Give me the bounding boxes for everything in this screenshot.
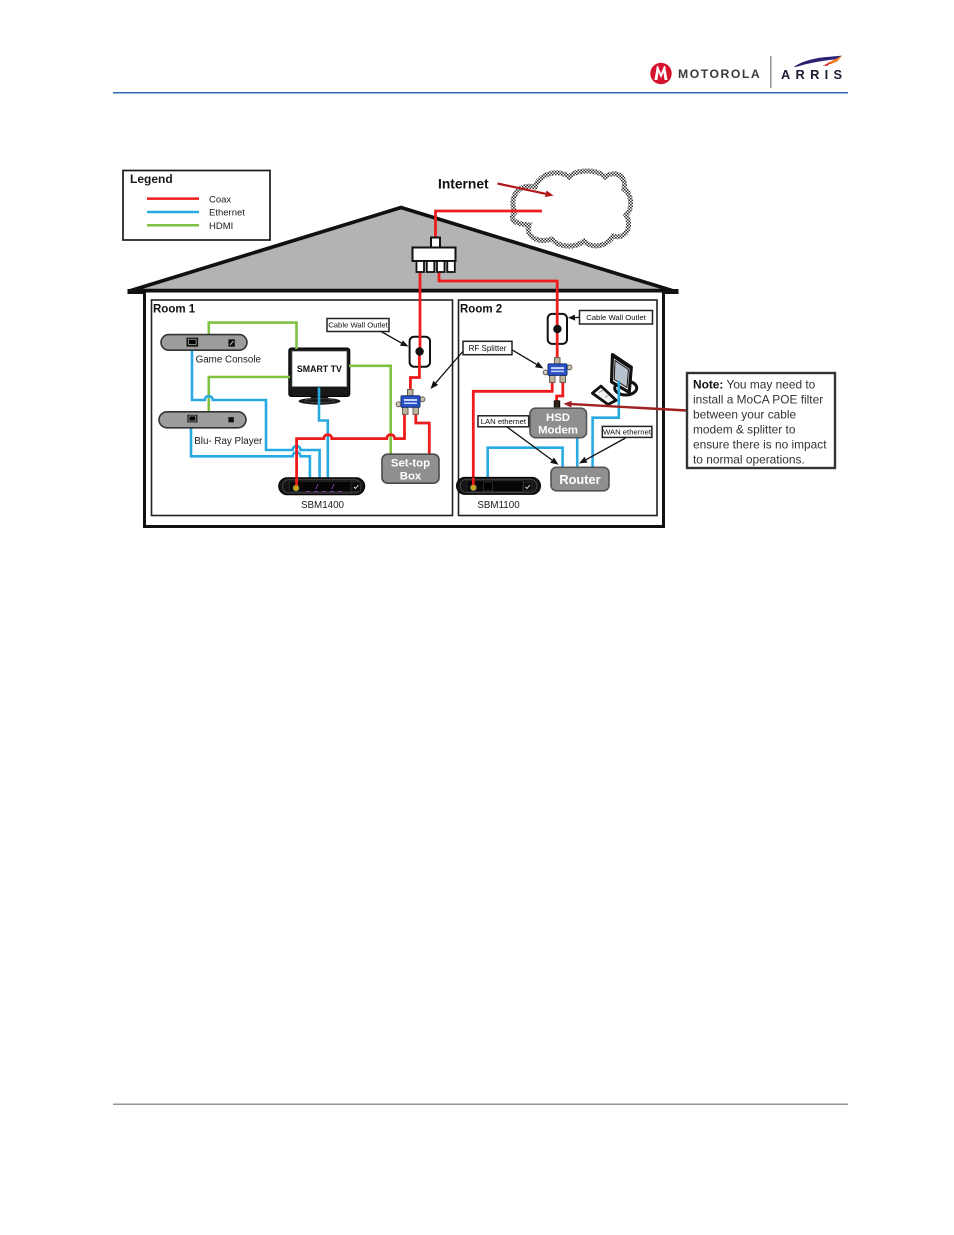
svg-text:ensure there is no impact: ensure there is no impact [693,438,827,452]
svg-text:install a MoCA POE filter: install a MoCA POE filter [693,393,823,407]
svg-text:Set-top: Set-top [391,458,430,470]
svg-text:Game Console: Game Console [196,355,262,366]
svg-text:Ethernet: Ethernet [209,208,245,219]
svg-text:SBM1100: SBM1100 [477,500,520,511]
svg-text:Room 1: Room 1 [153,304,196,316]
svg-text:RF Splitter: RF Splitter [469,344,507,353]
svg-text:Legend: Legend [130,172,173,186]
svg-text:ARRIS: ARRIS [781,67,847,82]
svg-text:MOTOROLA: MOTOROLA [678,67,761,81]
svg-text:Coax: Coax [209,194,231,205]
svg-text:LAN ethernet: LAN ethernet [481,417,527,426]
svg-text:HSD: HSD [546,412,570,424]
svg-text:to normal operations.: to normal operations. [693,453,805,467]
svg-text:Box: Box [400,471,422,483]
svg-text:modem & splitter to: modem & splitter to [693,423,796,437]
svg-text:Note: You may need to: Note: You may need to [693,378,816,392]
svg-text:Router: Router [559,472,600,487]
svg-text:between your cable: between your cable [693,408,797,422]
svg-text:Blu- Ray Player: Blu- Ray Player [194,436,263,447]
svg-text:SMART TV: SMART TV [297,364,342,374]
svg-text:Modem: Modem [538,425,578,437]
svg-text:Cable Wall Outlet: Cable Wall Outlet [328,321,388,330]
svg-text:WAN ethernet: WAN ethernet [603,428,652,437]
svg-text:Internet: Internet [438,177,489,192]
svg-text:HDMI: HDMI [209,221,233,232]
svg-text:Cable Wall Outlet: Cable Wall Outlet [586,313,646,322]
svg-text:Room 2: Room 2 [460,304,502,316]
svg-text:SBM1400: SBM1400 [301,500,345,511]
